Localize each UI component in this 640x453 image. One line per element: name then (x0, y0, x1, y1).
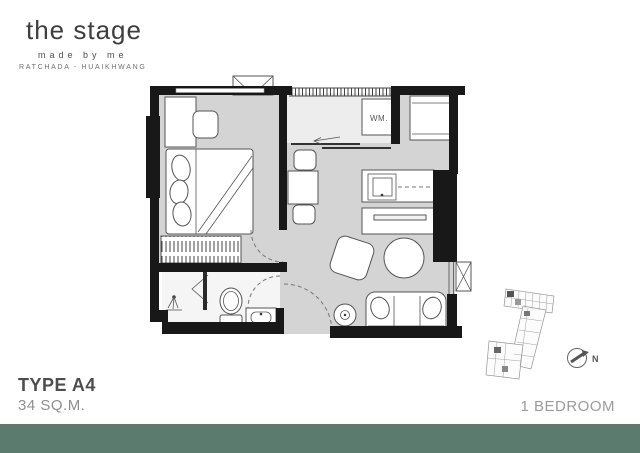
tv-console (362, 208, 434, 234)
north-indicator-icon (568, 349, 590, 368)
fridge (410, 96, 452, 140)
unit-area-label: 34 SQ.M. (18, 397, 85, 414)
tv (374, 215, 426, 220)
wardrobe (161, 236, 241, 263)
bed (166, 149, 253, 234)
floor-plan: WM. N (0, 0, 640, 453)
unit-bedroom-label: 1 BEDROOM (520, 398, 615, 415)
round-table (384, 238, 424, 278)
desk (165, 97, 196, 147)
desk-chair (193, 111, 218, 138)
dining-table (288, 171, 318, 204)
balcony-railing (289, 88, 395, 96)
unit-type-label: TYPE A4 (18, 375, 96, 396)
dining-chair-bottom (293, 205, 315, 224)
stool (334, 304, 356, 326)
kitchen-counter (362, 170, 434, 202)
toilet (220, 288, 242, 326)
footer-accent-band (0, 424, 640, 453)
site-key-plan (486, 289, 554, 379)
north-label: N (592, 354, 599, 364)
ac-condenser-right (456, 262, 471, 291)
washing-machine-label: WM. (370, 114, 388, 123)
bedroom-window (176, 89, 264, 93)
dining-chair-top (294, 150, 316, 170)
